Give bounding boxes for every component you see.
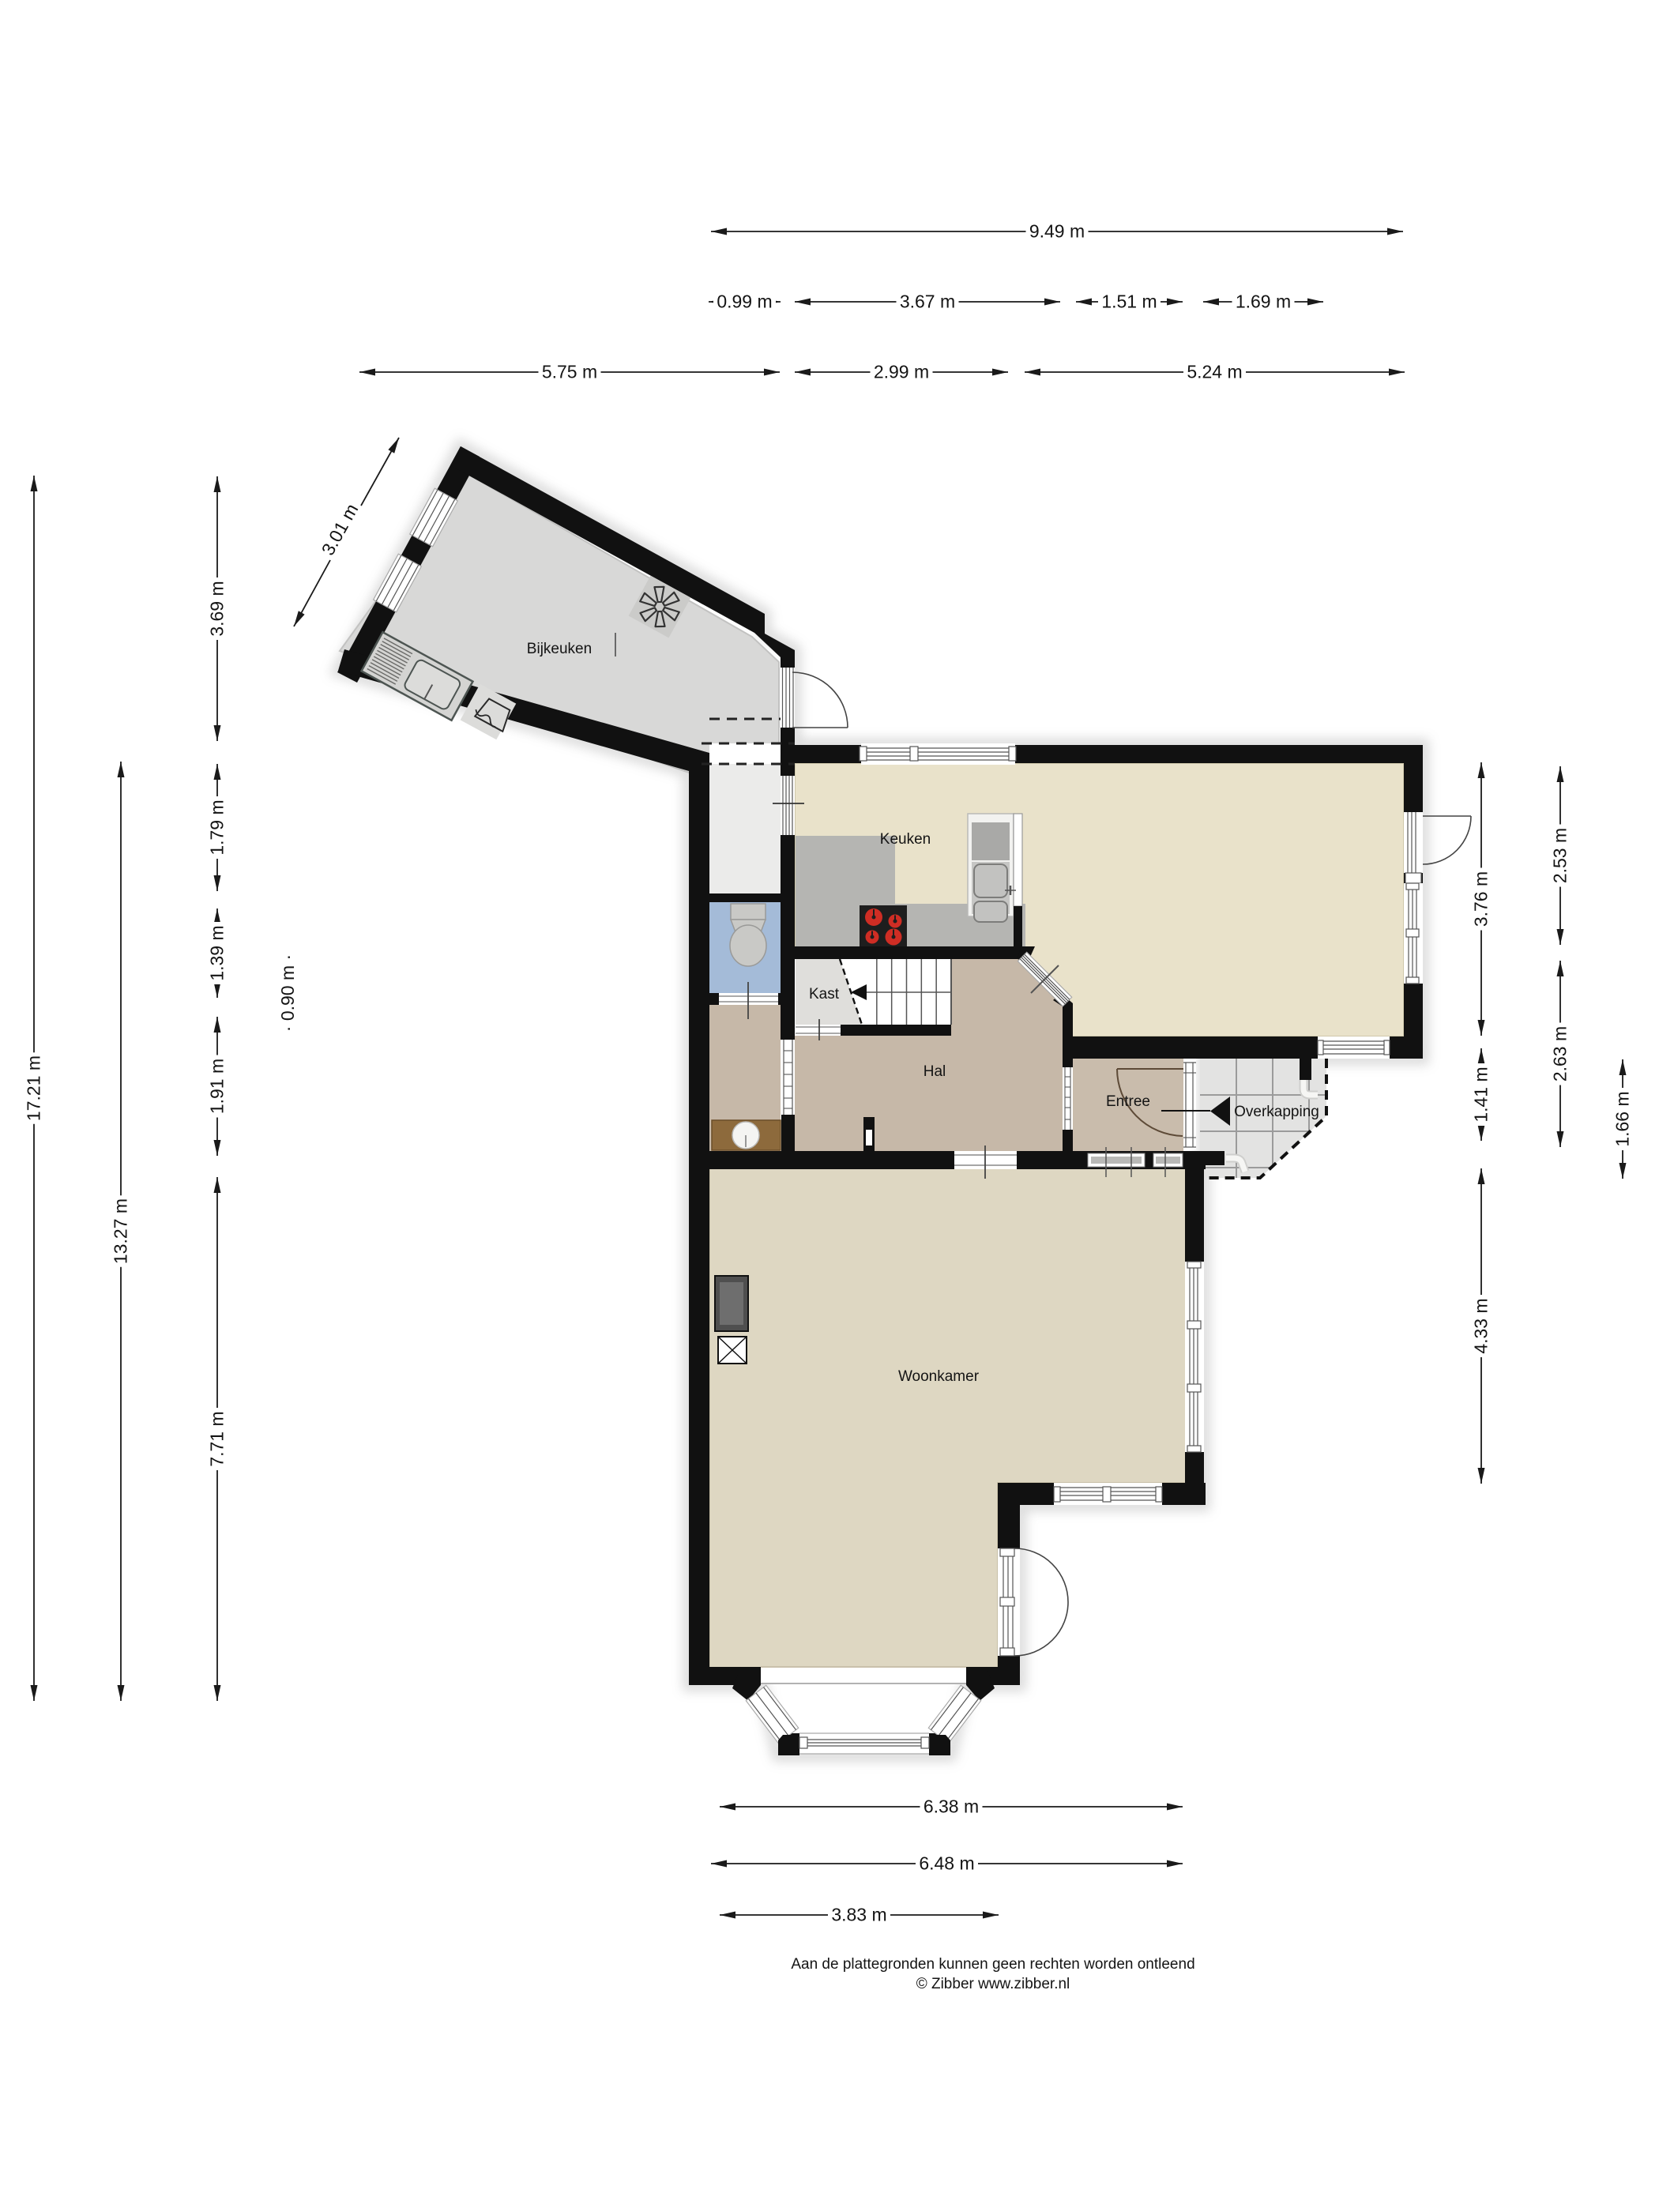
svg-text:1.66 m: 1.66 m [1612, 1091, 1632, 1146]
svg-text:Aan de plattegronden kunnen ge: Aan de plattegronden kunnen geen rechten… [791, 1956, 1194, 1973]
svg-text:1.79 m: 1.79 m [206, 799, 227, 855]
svg-text:1.41 m: 1.41 m [1470, 1066, 1491, 1122]
svg-text:3.83 m: 3.83 m [831, 1904, 886, 1924]
svg-text:Keuken: Keuken [880, 831, 931, 848]
svg-text:1.39 m: 1.39 m [206, 925, 227, 980]
svg-text:Entree: Entree [1106, 1093, 1150, 1110]
svg-text:1.91 m: 1.91 m [206, 1059, 227, 1114]
svg-text:4.33 m: 4.33 m [1470, 1298, 1491, 1353]
svg-text:5.75 m: 5.75 m [542, 361, 597, 382]
svg-text:3.67 m: 3.67 m [900, 291, 955, 311]
svg-text:2.63 m: 2.63 m [1549, 1026, 1570, 1082]
svg-text:7.71 m: 7.71 m [206, 1411, 227, 1466]
svg-text:0.99 m: 0.99 m [717, 291, 772, 311]
svg-text:9.49 m: 9.49 m [1029, 220, 1085, 241]
svg-text:5.24 m: 5.24 m [1187, 361, 1242, 382]
svg-text:© Zibber www.zibber.nl: © Zibber www.zibber.nl [916, 1976, 1070, 1992]
svg-text:17.21 m: 17.21 m [23, 1055, 43, 1121]
svg-text:Kast: Kast [809, 986, 840, 1003]
svg-text:2.99 m: 2.99 m [874, 361, 929, 382]
svg-text:· 0.90 m ·: · 0.90 m · [277, 954, 298, 1032]
svg-text:Woonkamer: Woonkamer [898, 1368, 980, 1385]
svg-text:1.51 m: 1.51 m [1101, 291, 1157, 311]
svg-text:3.76 m: 3.76 m [1470, 871, 1491, 927]
svg-text:1.69 m: 1.69 m [1236, 291, 1291, 311]
svg-text:6.38 m: 6.38 m [924, 1796, 979, 1816]
svg-text:Hal: Hal [924, 1063, 946, 1080]
svg-text:2.53 m: 2.53 m [1549, 828, 1570, 883]
svg-text:13.27 m: 13.27 m [110, 1198, 130, 1264]
svg-text:6.48 m: 6.48 m [919, 1853, 974, 1873]
svg-text:3.69 m: 3.69 m [206, 581, 227, 636]
svg-text:Overkapping: Overkapping [1234, 1104, 1319, 1120]
svg-text:Bijkeuken: Bijkeuken [527, 641, 592, 657]
